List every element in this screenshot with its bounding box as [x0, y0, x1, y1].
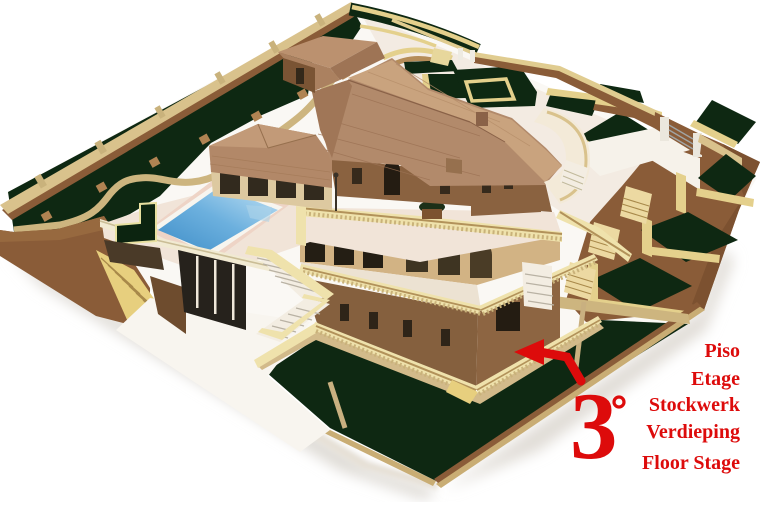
svg-text:Floor Stage: Floor Stage	[642, 452, 740, 474]
svg-text:Etage: Etage	[691, 368, 740, 390]
svg-text:Piso: Piso	[704, 340, 740, 362]
svg-text:Stockwerk: Stockwerk	[649, 394, 741, 416]
svg-text:3: 3	[570, 373, 618, 479]
svg-text:Verdieping: Verdieping	[646, 421, 740, 443]
